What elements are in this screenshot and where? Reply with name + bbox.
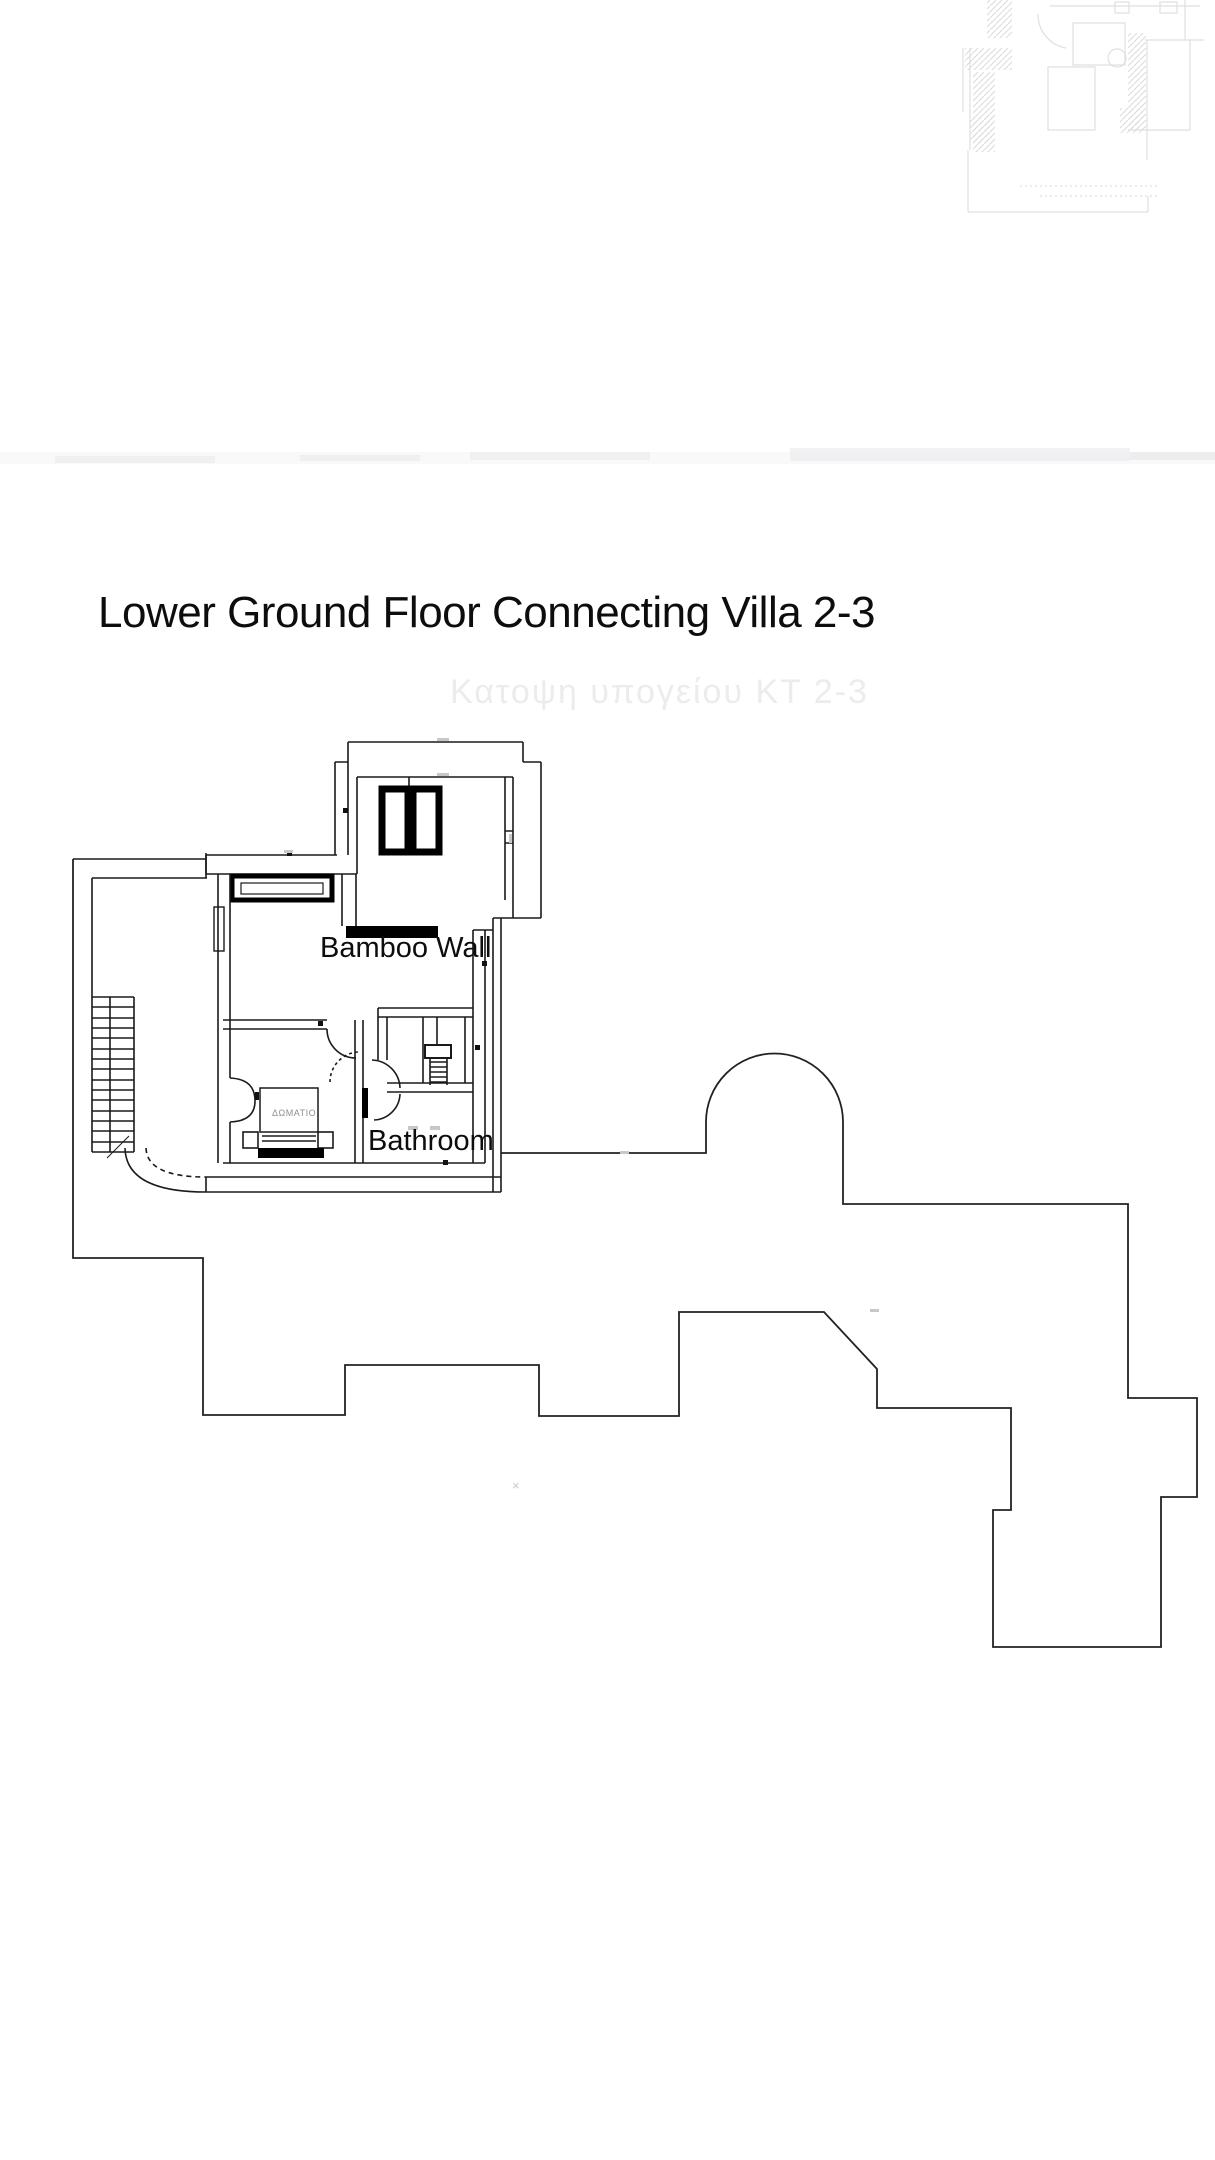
left-boundary-walls: [73, 853, 207, 1152]
footprint-outline: [73, 859, 1197, 1647]
bottom-walls: [206, 1163, 501, 1192]
floor-plan-canvas: Lower Ground Floor Connecting Villa 2-3 …: [0, 0, 1215, 2160]
bathroom: [372, 1008, 473, 1120]
scan-artifact-band: [0, 448, 1215, 464]
bedroom-left-wall: [214, 874, 255, 1163]
stray-mark: ×: [512, 1478, 520, 1493]
scanned-floor-plan-page: Lower Ground Floor Connecting Villa 2-3 …: [0, 0, 1215, 2160]
watermark-text: Κατοψη υπογείου ΚΤ 2-3: [450, 673, 869, 711]
bathroom-label: Bathroom: [368, 1125, 494, 1157]
window-frame: [232, 876, 332, 900]
bathroom-door-arcs: [372, 1060, 400, 1120]
bedroom-label: ΔΩΜΑΤΙΟ: [272, 1108, 316, 1118]
bamboo-wall-stub: [342, 874, 356, 926]
main-floor-plan: ΔΩΜΑΤΙΟ: [73, 738, 1197, 1647]
door-leaf-mark: [362, 1088, 368, 1118]
page-title: Lower Ground Floor Connecting Villa 2-3: [98, 588, 875, 637]
bedroom: ΔΩΜΑΤΙΟ: [223, 1020, 368, 1163]
wall-niche: [214, 907, 224, 951]
corridor-wall: [355, 1020, 363, 1163]
staircase: [92, 997, 134, 1158]
corridor-dashed-arc: [330, 1052, 358, 1082]
bamboo-wall-label: Bamboo Wall: [320, 932, 491, 964]
bed-base-bar: [258, 1148, 324, 1158]
corridor-curve-outer: [125, 1148, 206, 1192]
shower-stall: [425, 1045, 451, 1085]
dimension-smudges: [284, 738, 879, 1312]
stair-treads: [92, 997, 134, 1152]
faint-plan-fragment: [963, 0, 1204, 212]
closet-door-arcs: [230, 1078, 255, 1122]
left-wing-walls: [206, 855, 357, 874]
double-door-symbol: [382, 789, 439, 852]
corridor-curve-inner: [146, 1148, 206, 1177]
